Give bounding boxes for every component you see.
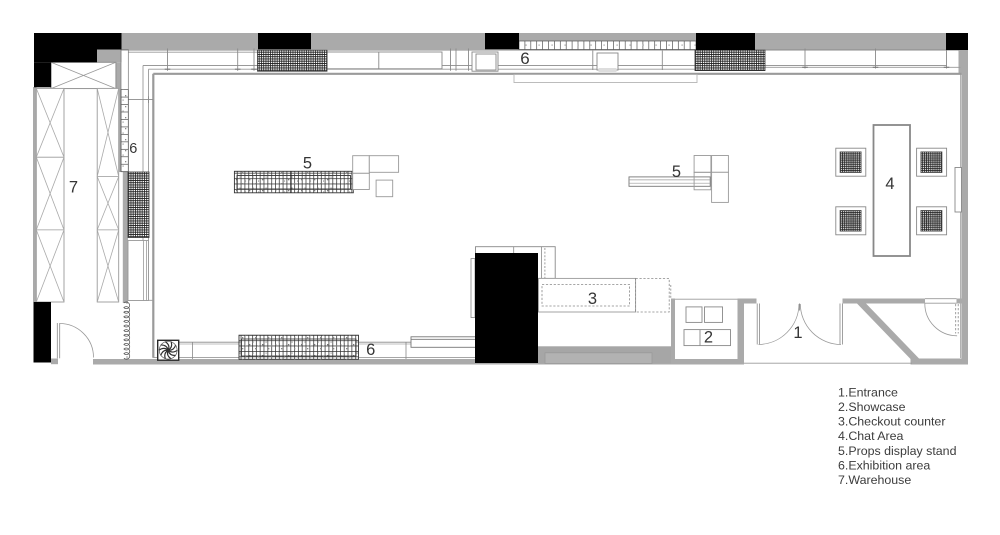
- svg-text:4.Chat Area: 4.Chat Area: [838, 429, 904, 443]
- svg-text:3: 3: [588, 290, 597, 308]
- svg-text:3.Checkout counter: 3.Checkout counter: [838, 415, 945, 429]
- svg-text:2: 2: [704, 328, 713, 346]
- svg-text:5: 5: [672, 163, 681, 181]
- svg-text:2.Showcase: 2.Showcase: [838, 400, 906, 414]
- svg-text:1.Entrance: 1.Entrance: [838, 386, 898, 400]
- svg-text:6: 6: [520, 49, 529, 68]
- svg-text:7: 7: [69, 179, 78, 197]
- svg-text:5.Props display stand: 5.Props display stand: [838, 444, 957, 458]
- svg-text:7.Warehouse: 7.Warehouse: [838, 473, 911, 487]
- svg-text:6: 6: [129, 141, 137, 157]
- svg-text:5: 5: [303, 155, 312, 173]
- svg-text:6.Exhibition area: 6.Exhibition area: [838, 458, 930, 472]
- svg-text:6: 6: [366, 341, 375, 359]
- svg-text:4: 4: [885, 175, 894, 193]
- svg-text:1: 1: [793, 324, 802, 342]
